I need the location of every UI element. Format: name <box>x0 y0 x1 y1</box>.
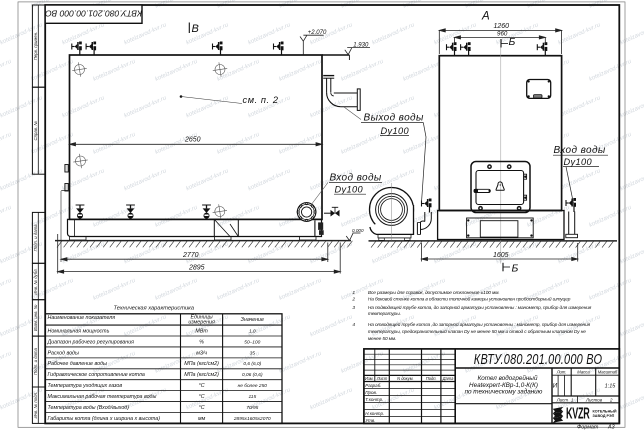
svg-text:N докум.: N докум. <box>397 376 414 381</box>
svg-text:1,0: 1,0 <box>249 329 256 335</box>
svg-text:50–100: 50–100 <box>244 339 260 345</box>
svg-text:КОТЕЛЬНЫЙ: КОТЕЛЬНЫЙ <box>593 409 617 413</box>
svg-text:2: 2 <box>609 397 613 402</box>
svg-text:0,06 (0,6): 0,06 (0,6) <box>242 372 263 378</box>
svg-text:КВТУ.080.201.00.000 ВО: КВТУ.080.201.00.000 ВО <box>45 9 142 19</box>
svg-text:А: А <box>481 11 490 23</box>
svg-text:см. п. 2: см. п. 2 <box>243 95 279 105</box>
svg-text:м3/ч: м3/ч <box>196 350 207 356</box>
svg-text:Н.контр.: Н.контр. <box>365 411 384 416</box>
svg-text:4: 4 <box>352 322 355 328</box>
svg-text:температуры, предохранительный: температуры, предохранительный клапан Dу… <box>368 328 586 335</box>
svg-text:Температура уходящих газов: Температура уходящих газов <box>48 383 123 389</box>
svg-text:И: И <box>553 382 558 389</box>
svg-text:КВТУ.080.201.00.000 ВО: КВТУ.080.201.00.000 ВО <box>474 350 602 367</box>
svg-text:измерения: измерения <box>188 319 215 325</box>
svg-text:Гидравлическое сопротивление к: Гидравлическое сопротивление котла <box>48 372 145 378</box>
svg-text:Dy100: Dy100 <box>335 184 364 194</box>
svg-text:2: 2 <box>351 297 355 303</box>
svg-text:Лист: Лист <box>376 376 388 381</box>
svg-text:2770: 2770 <box>182 252 199 259</box>
svg-text:Формат: Формат <box>577 425 599 430</box>
svg-text:На подводящей трубе котла, д: На подводящей трубе котла, до запорной а… <box>368 304 592 311</box>
svg-text:Дата: Дата <box>442 376 455 381</box>
svg-text:+2.070: +2.070 <box>308 30 327 36</box>
svg-text:МПа (кгс/см2): МПа (кгс/см2) <box>184 361 219 367</box>
svg-text:мм: мм <box>198 416 206 422</box>
svg-text:МПа (кгс/см2): МПа (кгс/см2) <box>184 372 219 378</box>
svg-text:Подп. и дата: Подп. и дата <box>33 348 38 376</box>
svg-text:Вход воды: Вход воды <box>554 145 606 156</box>
svg-text:Инв. № дубл.: Инв. № дубл. <box>33 268 38 294</box>
svg-text:ЗАВОД РЭП: ЗАВОД РЭП <box>593 414 615 418</box>
svg-text:Утв.: Утв. <box>365 418 375 423</box>
svg-text:960: 960 <box>497 31 508 38</box>
svg-text:Наименование показателя: Наименование показателя <box>48 315 116 321</box>
svg-text:Лит.: Лит. <box>556 369 567 374</box>
svg-text:Перв. примен.: Перв. примен. <box>33 32 38 61</box>
svg-text:МВт: МВт <box>195 329 208 335</box>
svg-text:°С: °С <box>199 405 205 411</box>
svg-text:Б: Б <box>509 36 516 48</box>
svg-text:Листов: Листов <box>585 397 603 402</box>
svg-text:На отводящей трубе котла ,до з: На отводящей трубе котла ,до запорной ар… <box>368 321 591 328</box>
svg-text:2650: 2650 <box>184 136 201 143</box>
svg-text:температуры.: температуры. <box>368 312 401 317</box>
svg-text:1605: 1605 <box>493 252 509 259</box>
svg-text:70/95: 70/95 <box>246 405 258 411</box>
svg-text:В: В <box>192 23 199 35</box>
svg-text:0,6 (6,0): 0,6 (6,0) <box>243 361 261 367</box>
svg-text:Диапазон рабочего регулировани: Диапазон рабочего регулирования <box>47 339 135 345</box>
svg-text:1: 1 <box>352 290 355 296</box>
svg-text:не более 250: не более 250 <box>238 383 268 389</box>
svg-text:Dy100: Dy100 <box>564 157 593 167</box>
svg-text:Расход воды: Расход воды <box>48 350 79 356</box>
svg-text:35: 35 <box>250 350 256 356</box>
svg-text:менее 50 мм.: менее 50 мм. <box>368 336 396 342</box>
svg-text:Техническая характеристика: Техническая характеристика <box>114 306 195 312</box>
svg-text:Лист: Лист <box>556 397 569 402</box>
svg-text:Максимальная рабочая температу: Максимальная рабочая температура воды <box>48 394 157 400</box>
svg-text:Пров.: Пров. <box>365 390 377 395</box>
svg-text:Котел водогрейный: Котел водогрейный <box>478 374 538 382</box>
svg-text:Масштаб: Масштаб <box>598 369 618 374</box>
svg-text:1.930: 1.930 <box>353 43 369 49</box>
svg-text:Подп. и дата: Подп. и дата <box>33 224 38 252</box>
svg-text:Т.контр.: Т.контр. <box>365 397 383 402</box>
svg-text:°С: °С <box>199 383 205 389</box>
svg-text:°С: °С <box>199 394 205 400</box>
svg-text:2895: 2895 <box>188 265 205 272</box>
svg-text:Номинальная мощность: Номинальная мощность <box>48 329 110 335</box>
svg-text:Все размеры для справок, допус: Все размеры для справок, допустимое откл… <box>368 290 500 296</box>
svg-text:Б: Б <box>512 263 519 275</box>
svg-text:1:15: 1:15 <box>605 383 617 389</box>
svg-text:Масса: Масса <box>577 369 590 374</box>
svg-text:Взам. инв. №: Взам. инв. № <box>33 304 38 331</box>
svg-text:А3: А3 <box>607 425 615 430</box>
svg-text:3: 3 <box>352 305 355 311</box>
svg-text:Рабочее давление воды: Рабочее давление воды <box>48 361 107 367</box>
svg-text:по техническому заданию: по техническому заданию <box>465 388 543 396</box>
svg-text:Выход воды: Выход воды <box>364 113 424 124</box>
svg-text:Значение: Значение <box>241 317 264 323</box>
svg-text:Изм.: Изм. <box>365 376 374 381</box>
svg-text:2895х1605х2070: 2895х1605х2070 <box>233 416 271 422</box>
svg-text:Температура воды (Вход/выход): Температура воды (Вход/выход) <box>48 405 130 411</box>
svg-text:0.000: 0.000 <box>352 228 364 233</box>
svg-text:Габариты котла (длина х ширина: Габариты котла (длина х ширина х высота) <box>48 416 161 422</box>
svg-text:115: 115 <box>248 394 256 400</box>
svg-text:На боковой стенке котла в обла: На боковой стенке котла в области топочн… <box>368 296 571 303</box>
svg-text:%: % <box>199 339 204 345</box>
svg-text:Разраб.: Разраб. <box>365 383 381 388</box>
svg-text:Dy100: Dy100 <box>381 126 410 136</box>
svg-text:KVZR: KVZR <box>566 405 590 422</box>
svg-text:Справ. №: Справ. № <box>33 121 38 141</box>
svg-text:Инв. № подл.: Инв. № подл. <box>33 392 38 419</box>
svg-text:Подп.: Подп. <box>426 376 437 381</box>
svg-text:1260: 1260 <box>494 23 510 30</box>
